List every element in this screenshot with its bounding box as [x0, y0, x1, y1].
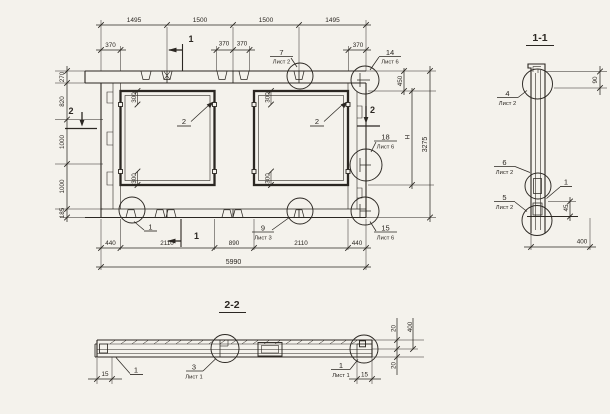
svg-text:Лист 2: Лист 2: [496, 170, 513, 176]
svg-text:2: 2: [370, 105, 375, 115]
technical-drawing: 300 300 2 300 300: [0, 0, 610, 414]
section-1-1-view: 1-1 4 Лист 2 6: [494, 32, 607, 250]
svg-text:Лист 2: Лист 2: [273, 60, 290, 66]
svg-text:7: 7: [279, 48, 283, 57]
svg-text:20: 20: [391, 325, 398, 333]
svg-text:14: 14: [386, 48, 394, 57]
callout-14: 14 Лист 6: [370, 48, 401, 70]
svg-text:370: 370: [219, 41, 230, 48]
bottom-band-key-marks: [126, 210, 304, 218]
svg-text:20: 20: [391, 362, 398, 370]
svg-text:1500: 1500: [259, 17, 274, 24]
svg-text:Лист 6: Лист 6: [377, 236, 394, 242]
svg-text:270: 270: [59, 71, 66, 82]
svg-text:5990: 5990: [226, 259, 242, 266]
callout-6: 6 Лист 2: [494, 158, 530, 176]
svg-text:440: 440: [352, 240, 363, 247]
section-title: 2-2: [224, 299, 239, 311]
svg-text:9: 9: [261, 224, 265, 233]
svg-text:440: 440: [105, 240, 116, 247]
dim-label: 300: [131, 92, 138, 103]
dim-label: 300: [265, 92, 272, 103]
callout-9: 9 Лист 3: [252, 217, 290, 242]
callout-1-bottom-left: 1: [134, 222, 157, 232]
svg-text:3: 3: [192, 363, 196, 372]
svg-text:1: 1: [339, 361, 343, 370]
callout-opening-b: 2: [310, 102, 348, 127]
callout-1-left-section22: 1: [116, 358, 143, 375]
callout-15: 15 Лист 6: [370, 222, 397, 242]
section-1-1-dimensions: 90 45 400: [524, 66, 603, 250]
callout-18: 18 Лист 6: [371, 133, 397, 153]
detail-circles: [119, 63, 382, 225]
svg-text:400: 400: [407, 321, 414, 332]
drawing-sheet: 300 300 2 300 300: [0, 0, 610, 414]
plan-bottom-dimensions: 440 2110 890 2110 440 5990: [96, 219, 371, 270]
svg-text:45: 45: [563, 204, 570, 212]
opening-a: 300 300 2: [119, 88, 217, 188]
svg-text:400: 400: [577, 239, 588, 246]
callout-1-right-section22: 1 Лист 1: [331, 360, 358, 380]
svg-text:Лист 6: Лист 6: [381, 60, 398, 66]
plan-top-dimensions: 1495 1500 1500 1495 370 370 370 370: [96, 17, 371, 71]
svg-text:Н: Н: [405, 134, 412, 139]
svg-text:1500: 1500: [193, 17, 208, 24]
top-band-key-marks: [141, 71, 304, 79]
svg-text:450: 450: [397, 75, 404, 86]
svg-text:370: 370: [353, 42, 364, 49]
svg-text:2: 2: [68, 106, 73, 116]
svg-text:2: 2: [182, 117, 186, 126]
svg-text:Лист 1: Лист 1: [185, 375, 202, 381]
svg-text:Лист 6: Лист 6: [377, 145, 394, 151]
callout-7: 7 Лист 2: [270, 48, 297, 67]
svg-text:370: 370: [237, 41, 248, 48]
svg-text:2: 2: [315, 117, 319, 126]
svg-text:1: 1: [188, 34, 193, 44]
svg-text:Лист 2: Лист 2: [499, 101, 516, 107]
svg-text:3275: 3275: [422, 137, 429, 153]
svg-text:6: 6: [502, 158, 506, 167]
callout-5: 5 Лист 2: [494, 193, 527, 212]
svg-text:185: 185: [59, 207, 66, 218]
svg-text:90: 90: [592, 76, 599, 84]
dim-label: 300: [265, 173, 272, 184]
plan-left-dimensions: 270 820 1000 1000 185: [55, 66, 103, 222]
svg-text:4: 4: [505, 89, 509, 98]
section-2-2-view: 2-2 1: [88, 299, 424, 384]
svg-text:890: 890: [229, 240, 240, 247]
section-2-2-slab: [95, 335, 378, 364]
svg-text:Лист 1: Лист 1: [332, 373, 349, 379]
svg-text:1: 1: [194, 231, 199, 241]
dim-label: 300: [131, 173, 138, 184]
callout-4: 4 Лист 2: [497, 89, 527, 107]
panel-joint-lines: [167, 71, 299, 218]
svg-text:Лист 2: Лист 2: [496, 205, 513, 211]
svg-text:820: 820: [59, 96, 66, 107]
svg-text:15: 15: [101, 371, 109, 378]
svg-text:5: 5: [502, 193, 506, 202]
svg-text:1495: 1495: [325, 17, 340, 24]
section-marker-2-right: 2: [357, 105, 380, 126]
plan-view: 300 300 2 300 300: [55, 17, 436, 270]
svg-text:1000: 1000: [59, 179, 66, 194]
callout-3-section22: 3 Лист 1: [185, 359, 216, 381]
svg-text:1: 1: [148, 223, 152, 232]
svg-text:15: 15: [381, 224, 389, 233]
opening-b: 300 300 2: [252, 88, 350, 188]
svg-text:370: 370: [105, 42, 116, 49]
svg-text:2110: 2110: [294, 240, 308, 247]
svg-text:1000: 1000: [59, 135, 66, 150]
svg-text:1: 1: [134, 366, 138, 375]
section-marker-1-top: 1: [168, 34, 194, 71]
svg-text:15: 15: [361, 372, 369, 379]
callout-opening-a: 2: [177, 102, 214, 127]
svg-text:1: 1: [564, 178, 568, 187]
svg-text:1495: 1495: [127, 17, 142, 24]
section-title: 1-1: [532, 32, 547, 44]
svg-text:18: 18: [381, 133, 389, 142]
svg-text:Лист 3: Лист 3: [254, 236, 271, 242]
